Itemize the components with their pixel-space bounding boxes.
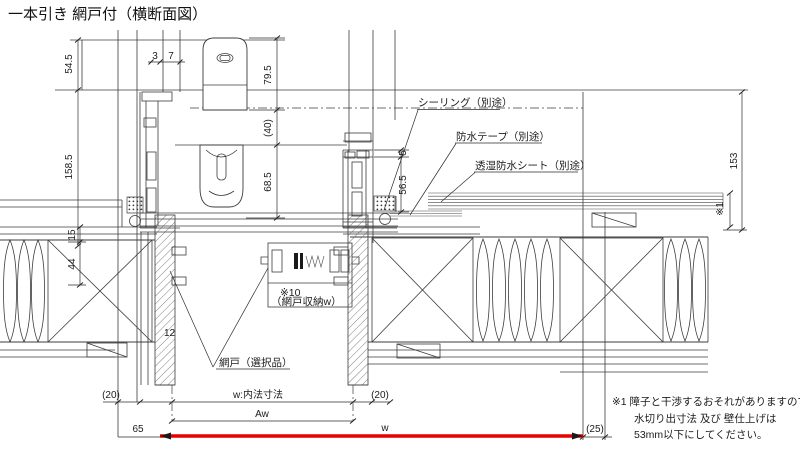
drawing-title: 一本引き 網戸付（横断面図）: [8, 6, 207, 23]
insulation-right-2: [665, 239, 706, 341]
dim-153: 153: [729, 152, 740, 169]
ref-1-marker: ※1: [715, 202, 726, 216]
sealing-callout: シーリング（別途）: [418, 96, 513, 109]
footnote-line-1: ※1 障子と干渉するおそれがありますので: [612, 395, 800, 408]
exterior-handle: [203, 38, 247, 110]
screen-callout: 網戸（選択品）: [219, 356, 293, 369]
frame-and-wall-lines: [0, 30, 748, 440]
exterior-finish-left: [141, 215, 186, 385]
footnote-line-2: 水切り出寸法 及び 壁仕上げは: [634, 412, 776, 425]
w-dimension-red-line: [160, 433, 583, 440]
dim-15: 15: [67, 229, 78, 241]
insulation-right-1: [477, 239, 554, 341]
dim-12: 12: [164, 328, 176, 339]
dim-7: 7: [168, 51, 174, 62]
breathable-waterproof-sheet: [428, 193, 723, 209]
footnote-line-3: 53mm以下にしてください。: [634, 429, 768, 441]
dim-65: 65: [132, 424, 144, 435]
interior-handle: [200, 145, 243, 207]
dim-w: w: [380, 423, 389, 434]
right-jamb-frame: [343, 133, 397, 228]
pocket-label: （網戸収納w）: [271, 295, 342, 308]
left-jamb-frame: [127, 92, 180, 228]
dim-5: 5: [398, 150, 409, 156]
dim-aw: Aw: [255, 409, 269, 420]
stud-brace-right-1: [372, 238, 473, 342]
stud-brace-left: [48, 240, 152, 342]
dim-68-5: 68.5: [263, 172, 274, 192]
technical-drawing: 一本引き 網戸付（横断面図） 54.5 158.5 3 7 79.5 (40) …: [0, 0, 800, 457]
dim-25: (25): [586, 424, 604, 435]
sealing-backer-left: [127, 197, 143, 213]
dim-54-5: 54.5: [64, 54, 75, 74]
dim-20-right: (20): [371, 390, 389, 401]
dim-56-5: 56.5: [398, 175, 409, 195]
dim-3: 3: [152, 51, 158, 62]
sheet-callout: 透湿防水シート（別途）: [475, 159, 591, 172]
dim-79-5: 79.5: [263, 65, 274, 85]
dim-w-inner: w:内法寸法: [232, 388, 283, 401]
dim-158-5: 158.5: [64, 154, 75, 179]
dim-20-left: (20): [102, 390, 120, 401]
tape-callout: 防水テープ（別途）: [456, 130, 550, 143]
insulation-left: [4, 240, 45, 342]
dim-40: (40): [263, 119, 274, 137]
dim-44: 44: [67, 258, 78, 270]
stud-brace-right-2: [560, 238, 663, 342]
drawing-canvas: 一本引き 網戸付（横断面図） 54.5 158.5 3 7 79.5 (40) …: [0, 0, 800, 457]
